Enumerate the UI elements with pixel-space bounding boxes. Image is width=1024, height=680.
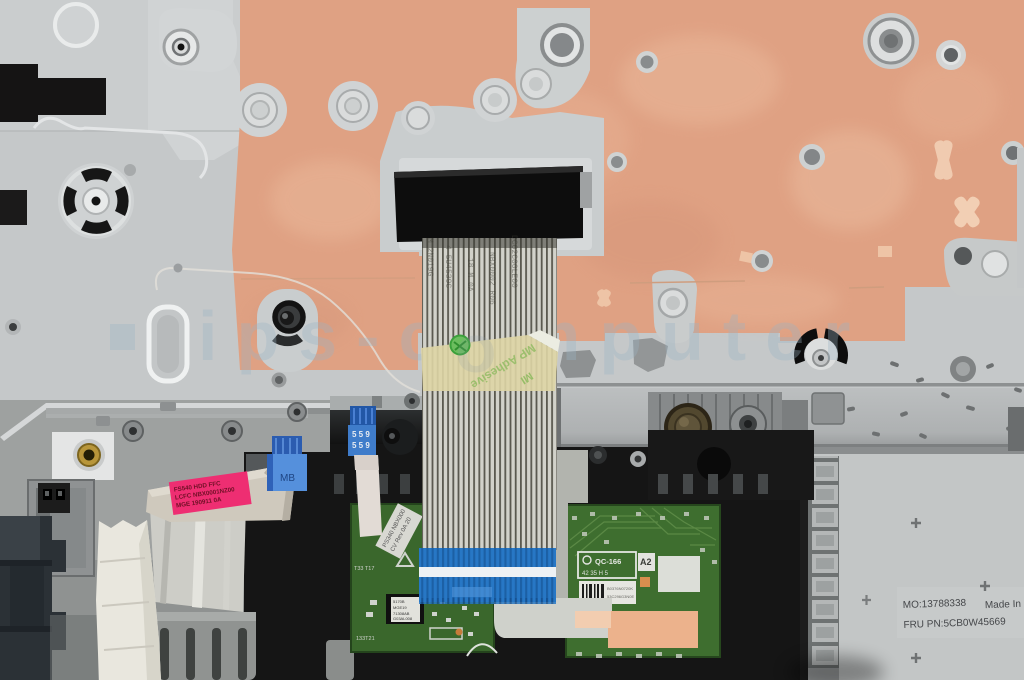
svg-text:MB: MB (280, 473, 295, 484)
svg-text:5170B: 5170B (393, 599, 405, 604)
svg-text:A2: A2 (640, 557, 652, 567)
svg-text:M 2N019G: M 2N019G (425, 238, 434, 277)
svg-text:NBX0002 R06: NBX0002 R06 (487, 252, 496, 305)
svg-text:Made In: Made In (985, 599, 1022, 611)
svg-text:G03AL008: G03AL008 (393, 616, 413, 621)
svg-text:T33 T17: T33 T17 (354, 566, 374, 572)
svg-text:o: o (455, 311, 497, 387)
svg-text:5 5 9: 5 5 9 (352, 430, 370, 439)
svg-text:18 M 0A: 18 M 0A (465, 258, 474, 292)
svg-text:QC-166: QC-166 (595, 557, 621, 566)
svg-text:133T21: 133T21 (356, 636, 375, 642)
svg-text:MGE19: MGE19 (393, 605, 407, 610)
svg-text:5 5 9: 5 5 9 (352, 441, 370, 450)
svg-text:B0376N0720K: B0376N0720K (607, 586, 633, 591)
svg-text:MO:13788338: MO:13788338 (903, 598, 967, 611)
svg-text:DC02C00LE00: DC02C00LE00 (509, 235, 518, 288)
svg-text:42 35 H 5: 42 35 H 5 (582, 571, 609, 577)
svg-text:4 5U4539C: 4 5U4539C (443, 245, 452, 288)
